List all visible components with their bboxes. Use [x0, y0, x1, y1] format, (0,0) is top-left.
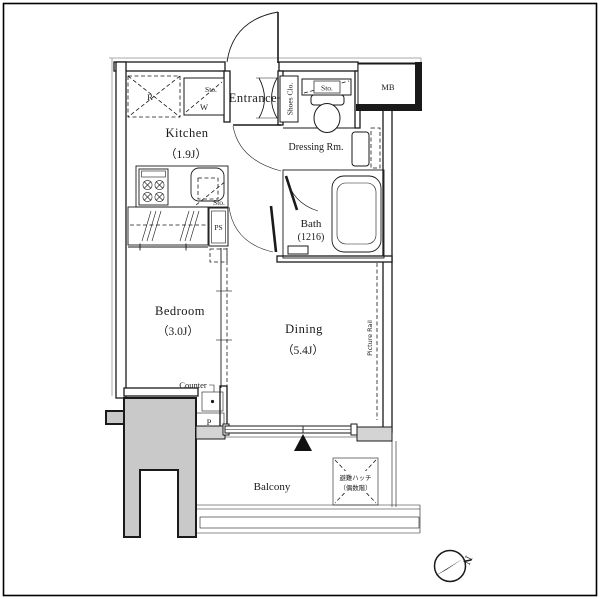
floorplan-drawing: MB Entrance Shoes Clo. Sto. Dressing Rm.	[0, 0, 600, 599]
kitchen-size-label: （1.9J）	[165, 148, 207, 161]
evacuation-hatch: 避難ハッチ （偶数階）	[333, 458, 378, 505]
bath-room: Bath (1216)	[283, 170, 384, 258]
toilet-area: Sto.	[302, 79, 351, 133]
hall-dining-door	[229, 206, 276, 252]
sliding-partition	[216, 248, 232, 388]
washer-label: W	[200, 102, 208, 112]
balcony-opening	[196, 424, 392, 451]
image-border	[4, 4, 597, 596]
counter-label: Counter	[179, 380, 207, 390]
compass-needle	[435, 558, 464, 576]
dining-door-leaf	[271, 206, 276, 252]
toilet-bowl	[314, 104, 340, 133]
bathtub	[332, 176, 381, 252]
entrance-door-swing	[227, 12, 278, 62]
dining: Dining （5.4J） Picture Rail	[282, 263, 377, 420]
meter-box-label: MB	[381, 82, 395, 92]
pipe-space-label: PS	[214, 223, 222, 232]
compass-icon: N	[435, 551, 475, 582]
bath-size-label: (1216)	[298, 232, 325, 243]
bedroom-label: Bedroom	[155, 304, 205, 318]
balcony: Balcony 避難ハッチ （偶数階）	[196, 441, 420, 533]
picture-rail-label: Picture Rail	[366, 320, 374, 356]
dining-door-swing	[229, 207, 273, 252]
evacuation-hatch-label-2: （偶数階）	[340, 483, 372, 492]
bath-label: Bath	[301, 218, 322, 230]
bedroom-closet	[128, 207, 208, 251]
sink-storage-label: Sto.	[213, 198, 225, 207]
refrigerator-space: R	[128, 76, 180, 117]
washer-space	[371, 128, 380, 168]
dressing-room: Dressing Rm.	[233, 125, 380, 171]
dressing-room-label: Dressing Rm.	[289, 142, 344, 153]
meter-box-wall-right	[415, 62, 422, 111]
shoes-closet-label: Shoes Clo.	[286, 83, 295, 116]
kitchen: R Sto. W Kitchen （1.9J） Sto.	[128, 76, 228, 207]
washer-storage-label: Sto.	[205, 85, 217, 94]
dining-label: Dining	[285, 322, 323, 336]
structural-column	[106, 398, 196, 537]
toilet-storage-label: Sto.	[321, 84, 333, 93]
entrance-label: Entrance	[229, 91, 277, 105]
kitchen-counter: Sto.	[136, 166, 228, 207]
washbasin	[352, 132, 369, 166]
orientation-triangle	[294, 434, 312, 451]
refrigerator-label: R	[147, 92, 153, 102]
meter-box-wall-bottom	[356, 104, 422, 111]
washer-space: Sto. W	[184, 78, 224, 115]
floorplan-page: MB Entrance Shoes Clo. Sto. Dressing Rm.	[0, 0, 600, 599]
dining-size-label: （5.4J）	[282, 344, 324, 357]
dressing-door-swing	[233, 126, 281, 171]
balcony-label: Balcony	[254, 481, 291, 493]
evacuation-hatch-label-1: 避難ハッチ	[340, 473, 372, 482]
bedroom-size-label: （3.0J）	[157, 325, 199, 338]
kitchen-label: Kitchen	[165, 126, 208, 140]
balcony-railing	[196, 505, 420, 533]
pipe-space: PS	[209, 208, 228, 262]
meter-box: MB	[356, 62, 422, 111]
